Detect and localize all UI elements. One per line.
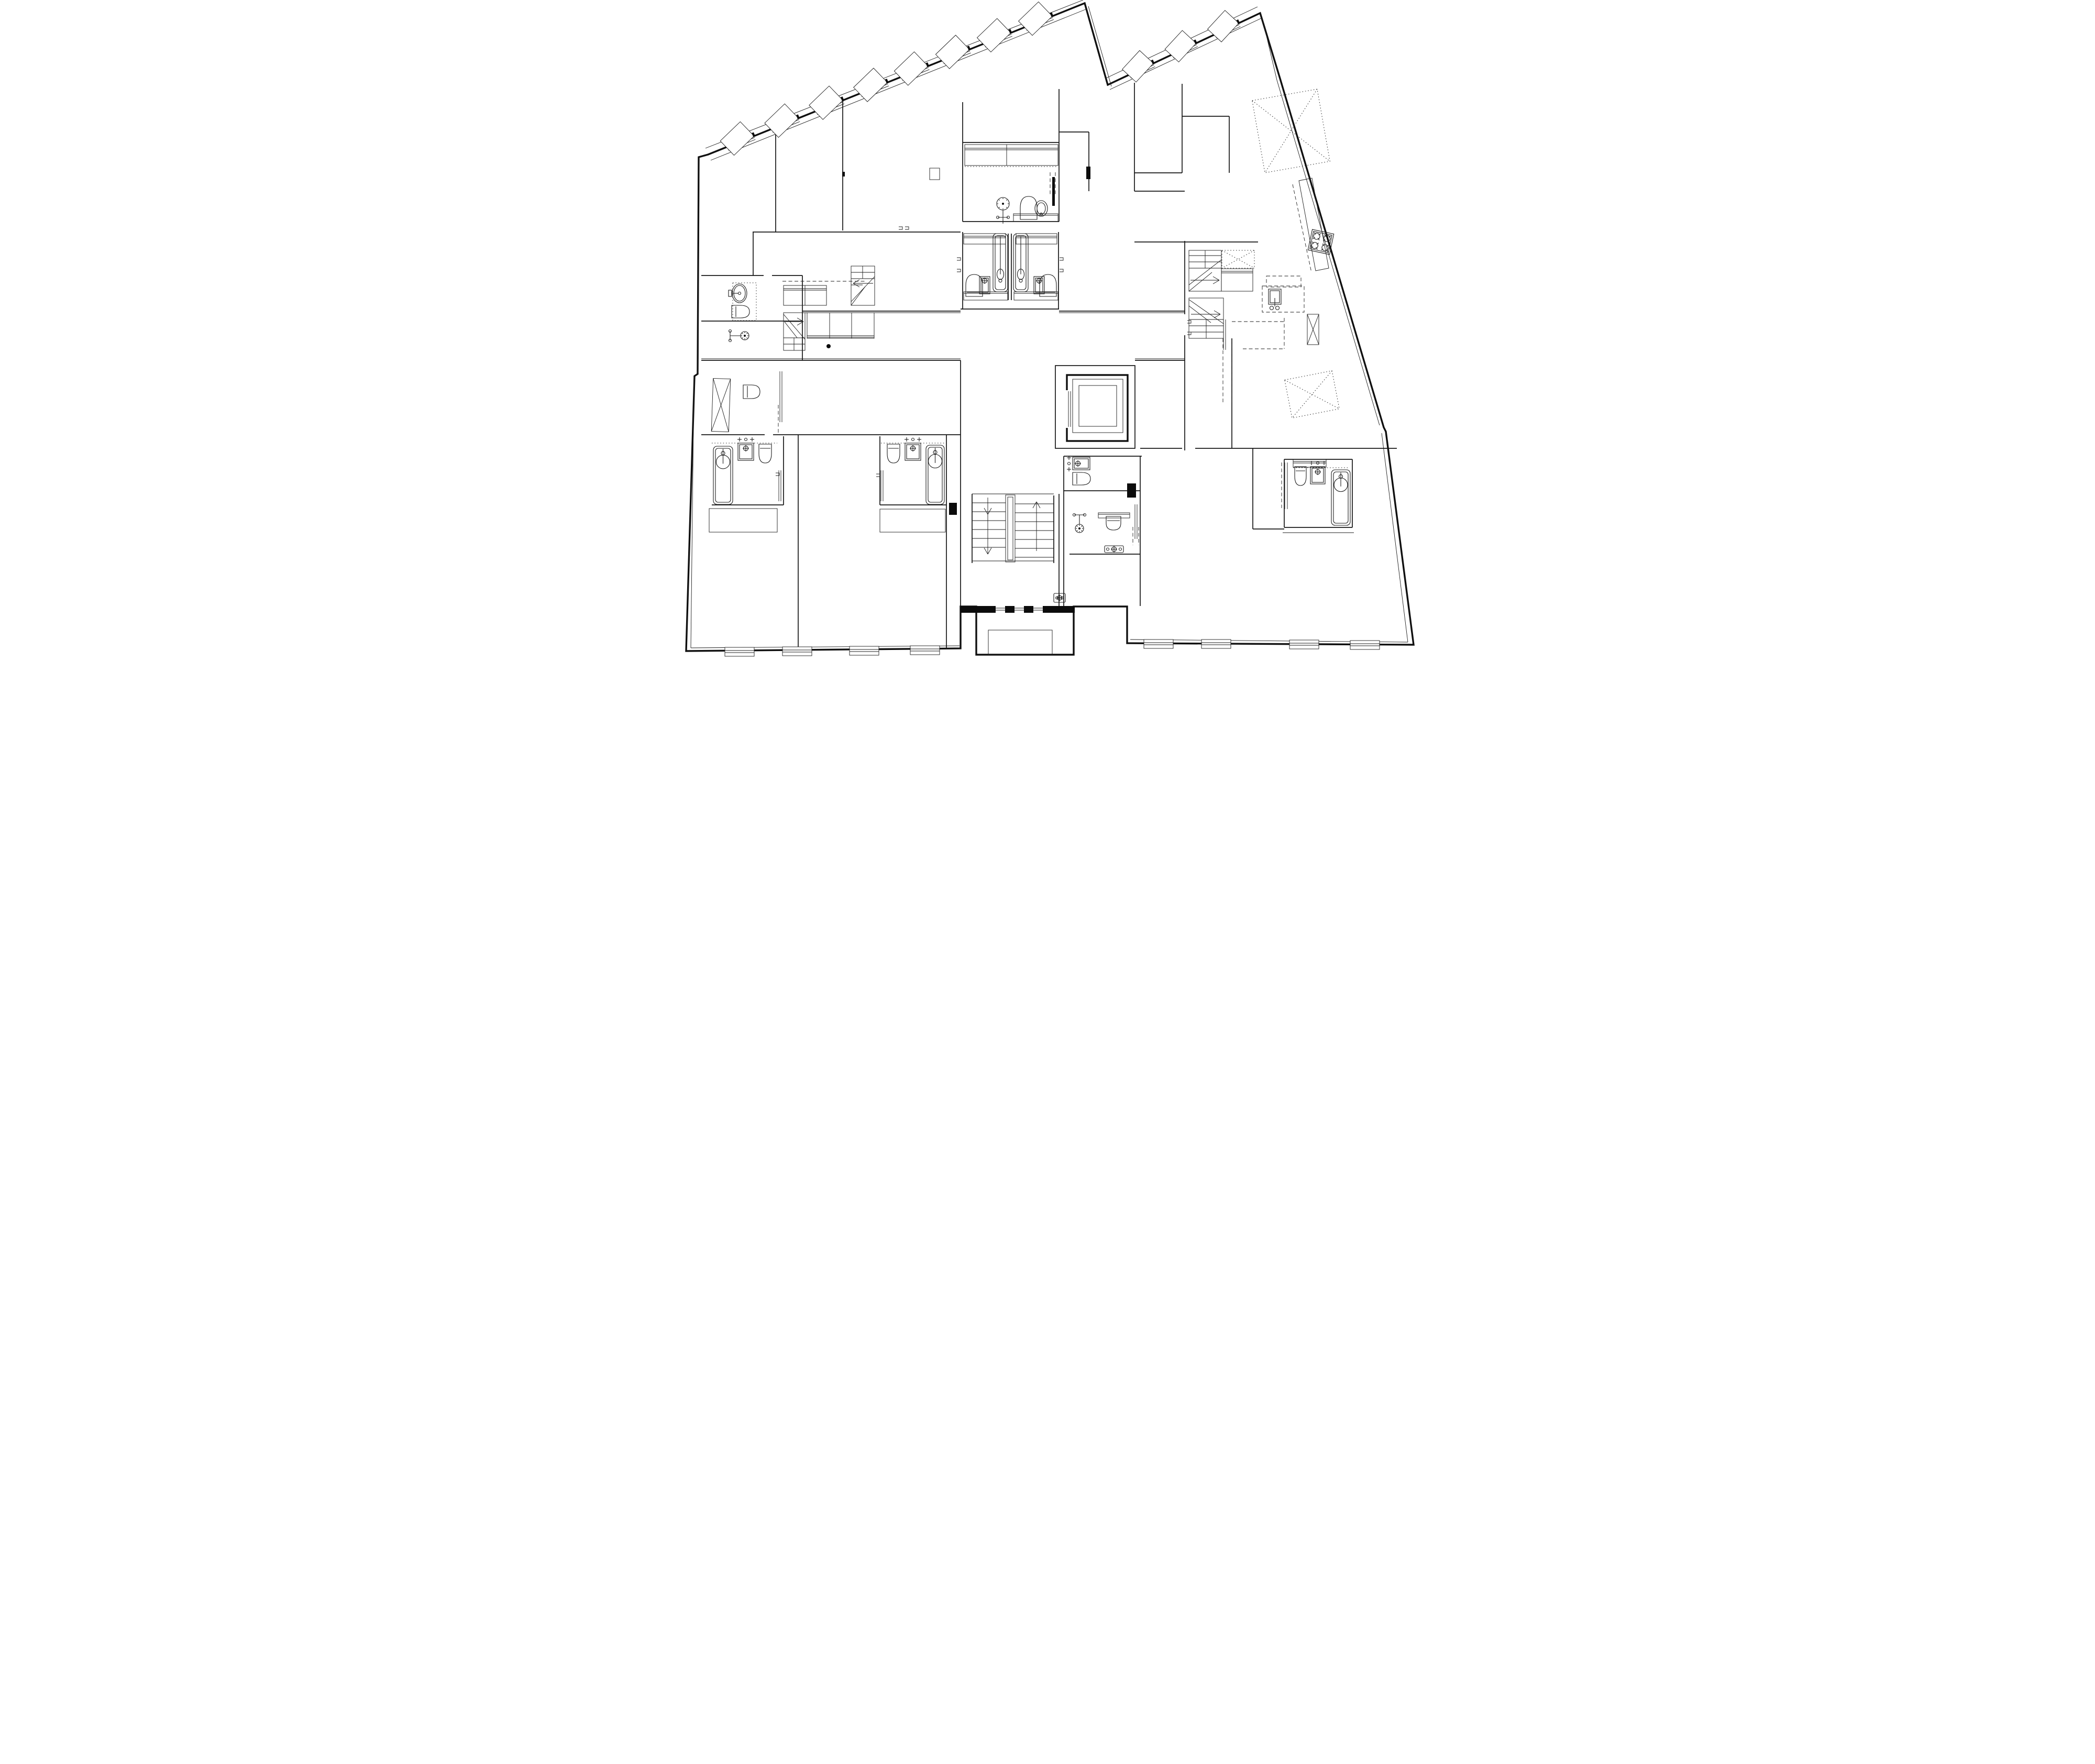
- column-fill: [949, 503, 957, 515]
- column-fill: [1052, 177, 1055, 206]
- window: [1350, 641, 1380, 649]
- window: [1289, 640, 1319, 649]
- column-fill: [842, 172, 845, 177]
- window: [1201, 640, 1231, 648]
- window: [782, 647, 812, 656]
- floor-plan-canvas: [640, 0, 1455, 686]
- window: [1144, 640, 1173, 648]
- column-fill: [1127, 483, 1136, 498]
- window: [725, 647, 754, 656]
- window: [910, 646, 940, 655]
- floor-plan-page: [640, 0, 1455, 686]
- window: [850, 646, 879, 655]
- column-dot: [826, 344, 831, 348]
- column-fill: [1086, 167, 1090, 179]
